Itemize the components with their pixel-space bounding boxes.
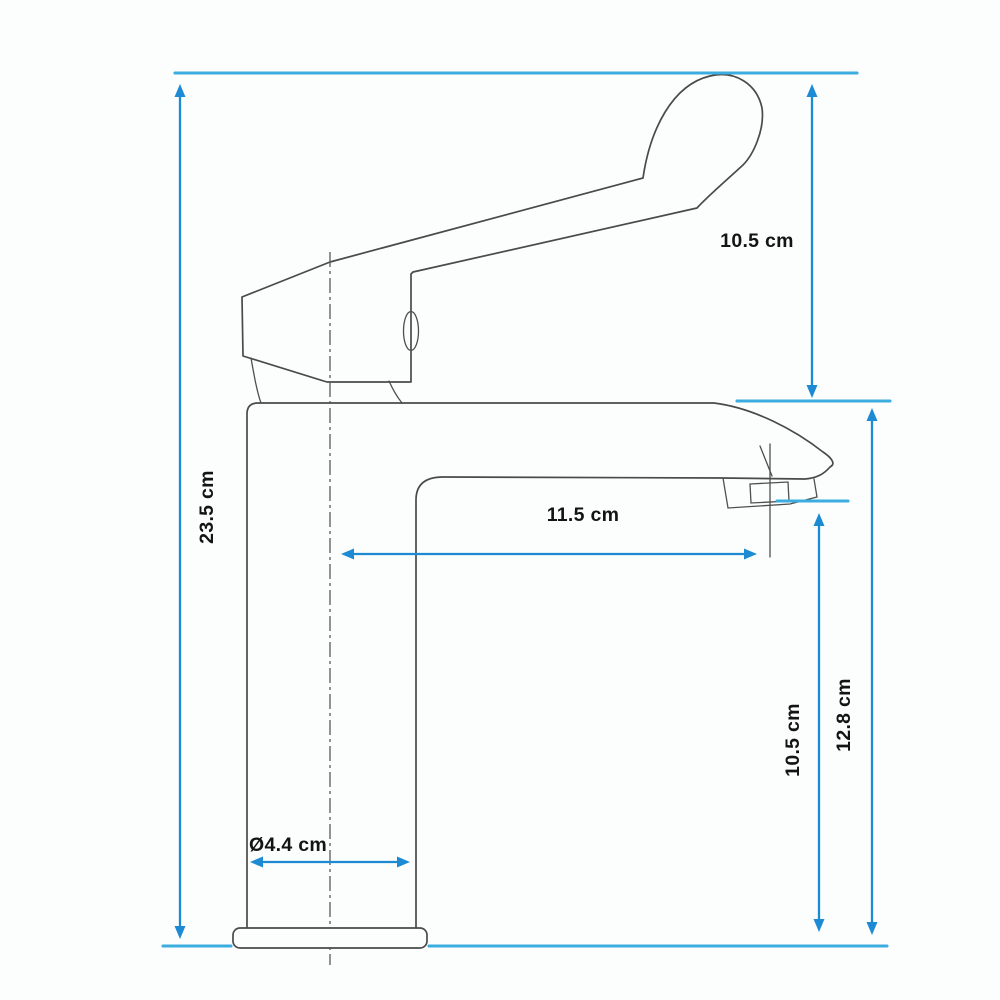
dim-spout-top-height-label: 12.8 cm (833, 678, 855, 752)
dim-base-diameter-arrow-right (397, 857, 410, 868)
dimension-annotations: 23.5 cm 10.5 cm 11.5 cm 10.5 (175, 84, 878, 939)
dim-outlet-height-arrow-down (814, 919, 825, 932)
dimension-diagram-canvas: 23.5 cm 10.5 cm 11.5 cm 10.5 (0, 0, 1000, 1000)
dim-base-diameter-arrow-left (250, 857, 263, 868)
neck-right-line (389, 381, 402, 403)
dim-base-diameter-label: Ø4.4 cm (249, 834, 327, 856)
dim-spout-reach-label: 11.5 cm (547, 504, 620, 526)
dim-outlet-height-label: 10.5 cm (782, 703, 804, 777)
column-and-spout-outline (247, 403, 833, 928)
dim-total-height-arrow-up (175, 84, 186, 97)
dim-spout-top-height-arrow-down (867, 922, 878, 935)
base-plinth (233, 928, 427, 948)
dim-total-height-label: 23.5 cm (196, 470, 218, 544)
dim-spout-top-height-arrow-up (867, 408, 878, 421)
lever-handle-and-body-outline (242, 75, 762, 382)
dim-outlet-height: 10.5 cm (782, 513, 825, 932)
dim-spout-reach: 11.5 cm (341, 504, 757, 560)
faucet-dimension-diagram: 23.5 cm 10.5 cm 11.5 cm 10.5 (0, 0, 1000, 1000)
dim-outlet-height-arrow-up (814, 513, 825, 526)
neck-left-line (251, 358, 261, 403)
dim-total-height: 23.5 cm (175, 84, 219, 939)
dim-spout-reach-arrow-right (744, 549, 757, 560)
dim-handle-height-label: 10.5 cm (720, 230, 794, 252)
dim-spout-top-height: 12.8 cm (833, 408, 878, 935)
dim-total-height-arrow-down (175, 926, 186, 939)
extent-lines (163, 73, 890, 946)
dim-handle-height-arrow-up (807, 84, 818, 97)
dim-handle-height: 10.5 cm (720, 84, 817, 398)
faucet-outline (233, 75, 833, 965)
dim-spout-reach-arrow-left (341, 549, 354, 560)
dim-handle-height-arrow-down (807, 385, 818, 398)
